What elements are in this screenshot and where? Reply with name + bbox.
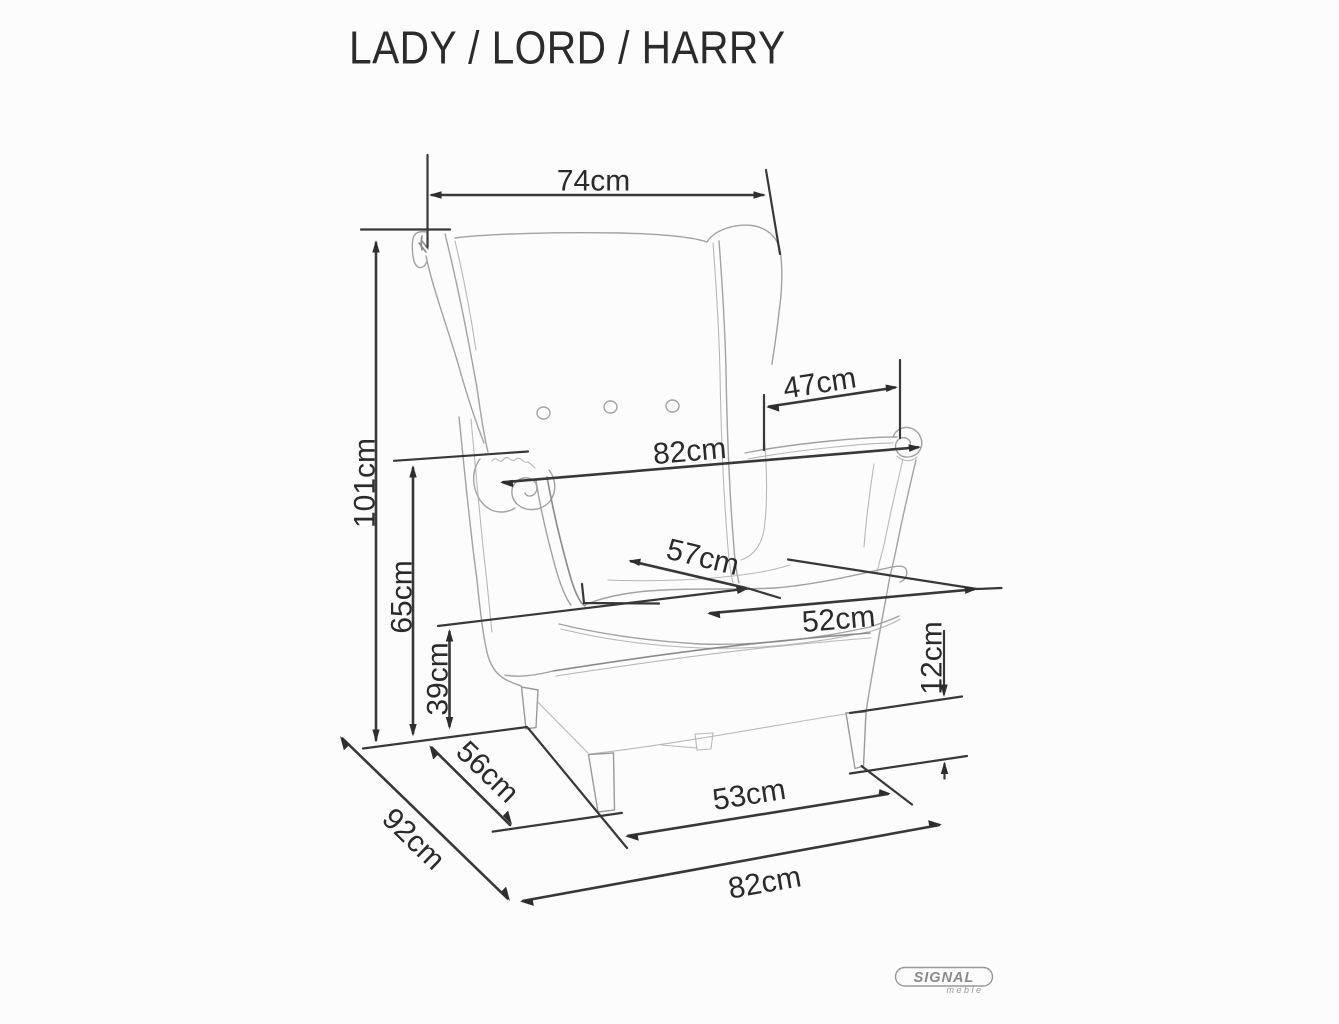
svg-text:101cm: 101cm xyxy=(349,438,382,528)
svg-text:LADY / LORD / HARRY: LADY / LORD / HARRY xyxy=(349,23,786,74)
svg-text:meble: meble xyxy=(946,985,983,995)
svg-text:74cm: 74cm xyxy=(557,165,630,198)
svg-text:65cm: 65cm xyxy=(386,560,419,633)
svg-text:SIGNAL: SIGNAL xyxy=(914,970,975,986)
svg-text:39cm: 39cm xyxy=(422,642,455,715)
svg-text:82cm: 82cm xyxy=(652,432,728,471)
svg-text:12cm: 12cm xyxy=(916,621,949,694)
svg-text:52cm: 52cm xyxy=(801,600,877,639)
